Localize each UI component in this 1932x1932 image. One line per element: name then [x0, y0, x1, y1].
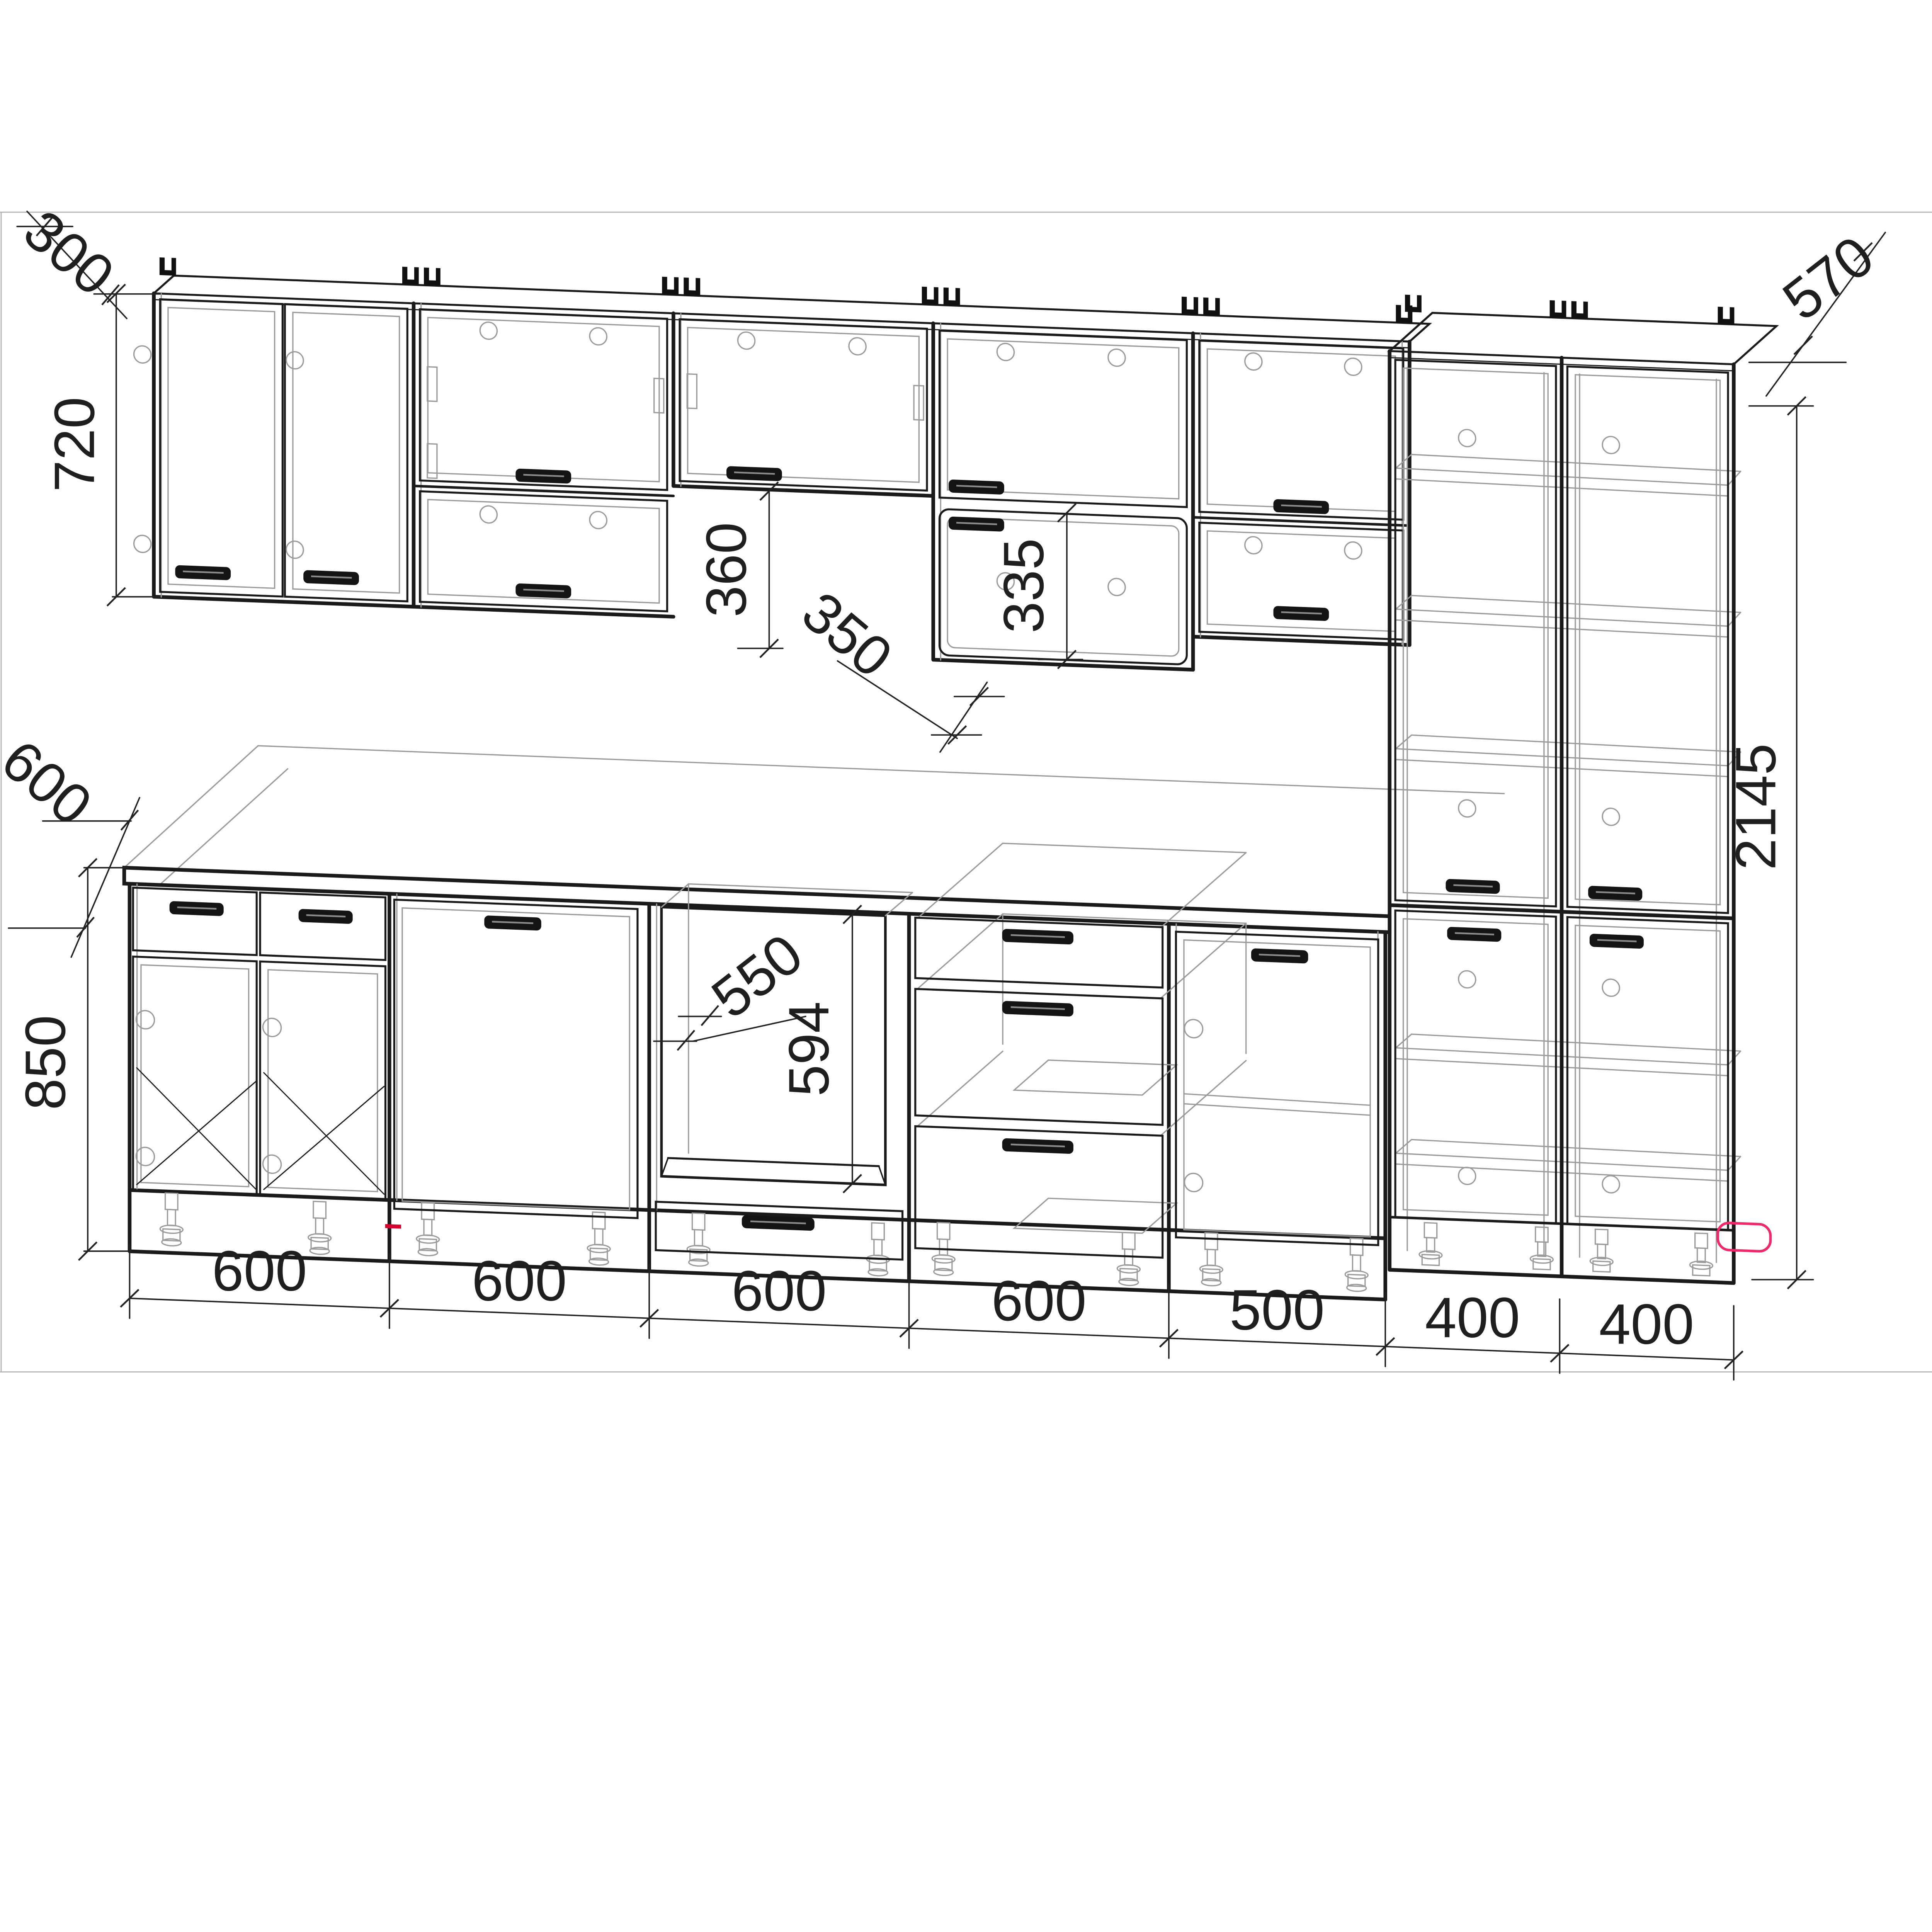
- dim-label-w2: 600: [472, 1250, 567, 1313]
- leg-icon: [1530, 1227, 1553, 1270]
- dim-tall-depth: 570: [1749, 224, 1886, 396]
- dim-label-335: 335: [992, 538, 1056, 633]
- dim-label-570: 570: [1771, 224, 1885, 333]
- leg-icon: [687, 1213, 710, 1267]
- dim-label-w5: 500: [1230, 1279, 1325, 1342]
- handle: [170, 901, 224, 916]
- leg-icon: [1345, 1238, 1368, 1292]
- handle: [1273, 606, 1329, 621]
- handle: [742, 1215, 815, 1231]
- hinge-plate-icon: [427, 367, 437, 401]
- base-600-full-door: [394, 900, 638, 1218]
- dim-wall-lower-door: 335: [992, 503, 1083, 668]
- dim-wall-height: 720: [43, 284, 160, 606]
- dim-label-300: 300: [12, 198, 126, 308]
- dim-counter-depth: 600: [0, 728, 139, 957]
- base-cabinet-row: [129, 810, 1770, 1315]
- kitchen-elevation-drawing: 300 720 360 350: [0, 0, 1932, 1581]
- leg-icon: [1419, 1223, 1442, 1265]
- handle: [949, 480, 1004, 495]
- dim-tall-height: 2145: [1725, 397, 1813, 1289]
- base-600-drawers-doors: [133, 888, 385, 1200]
- wall-mount-brackets: [160, 257, 1412, 323]
- red-accent-mark: [385, 1224, 401, 1229]
- dim-label-2145: 2145: [1725, 743, 1788, 870]
- leg-icon: [1200, 1233, 1223, 1286]
- handle: [515, 583, 571, 599]
- hinge-plate-icon: [687, 374, 697, 408]
- wall-cab-600-flap-and-335-door: [939, 331, 1187, 665]
- wall-cab-600-double-door: [134, 298, 408, 601]
- dim-label-w1: 600: [212, 1240, 307, 1303]
- countertop: [124, 741, 1504, 937]
- leg-icon: [308, 1201, 331, 1255]
- handle: [1002, 929, 1073, 945]
- leg-icon: [1690, 1233, 1713, 1276]
- handle: [299, 909, 353, 924]
- wall-cabinet-row: [134, 257, 1430, 679]
- handle: [303, 570, 359, 585]
- leg-icon: [1117, 1232, 1140, 1286]
- dim-wall-depth: 300: [12, 198, 160, 318]
- handle: [1273, 499, 1329, 514]
- leg-icon: [587, 1212, 610, 1265]
- dim-label-w6: 400: [1425, 1286, 1520, 1350]
- wall-cab-600-two-flaps: [413, 309, 673, 612]
- leg-icon: [160, 1193, 183, 1247]
- handle: [949, 517, 1004, 532]
- dim-label-594: 594: [777, 1002, 841, 1097]
- pink-highlighted-leg: [1718, 1223, 1770, 1252]
- handle: [1447, 927, 1501, 942]
- handle: [1002, 1001, 1073, 1017]
- hinge-hole-icon: [134, 345, 151, 363]
- dim-label-w3: 600: [731, 1259, 827, 1323]
- hinge-hole-icon: [134, 535, 151, 553]
- cad-drawing-page: 300 720 360 350: [0, 0, 1932, 1581]
- wall-cab-500-two-flaps: [1193, 340, 1410, 640]
- handle: [1002, 1138, 1073, 1154]
- dim-base-height: 850: [14, 859, 131, 1260]
- handle: [1251, 948, 1308, 964]
- dim-hood-depth: 350: [790, 580, 1004, 752]
- tall-cabinets: [1389, 294, 1776, 1285]
- dim-label-360: 360: [695, 522, 758, 617]
- leg-icon: [867, 1223, 889, 1276]
- handle: [1446, 879, 1500, 894]
- handle: [515, 468, 571, 483]
- dim-label-720: 720: [43, 397, 106, 492]
- dim-label-w4: 600: [992, 1269, 1087, 1333]
- hinge-hole-icon: [286, 351, 303, 369]
- wall-cab-600-hood-flap: [680, 319, 927, 490]
- handle: [484, 915, 541, 931]
- dim-label-w7: 400: [1599, 1293, 1694, 1356]
- base-500-door: [1176, 932, 1378, 1245]
- handle: [175, 565, 231, 580]
- handle: [726, 466, 782, 481]
- cabinetry: [121, 245, 1777, 1381]
- dim-label-850: 850: [14, 1015, 77, 1110]
- hinge-hole-icon: [286, 541, 303, 559]
- handle: [1590, 934, 1644, 949]
- handle: [1588, 886, 1642, 901]
- dim-hood-gap: 360: [695, 482, 783, 657]
- leg-icon: [1590, 1229, 1613, 1272]
- dim-label-350: 350: [790, 580, 904, 690]
